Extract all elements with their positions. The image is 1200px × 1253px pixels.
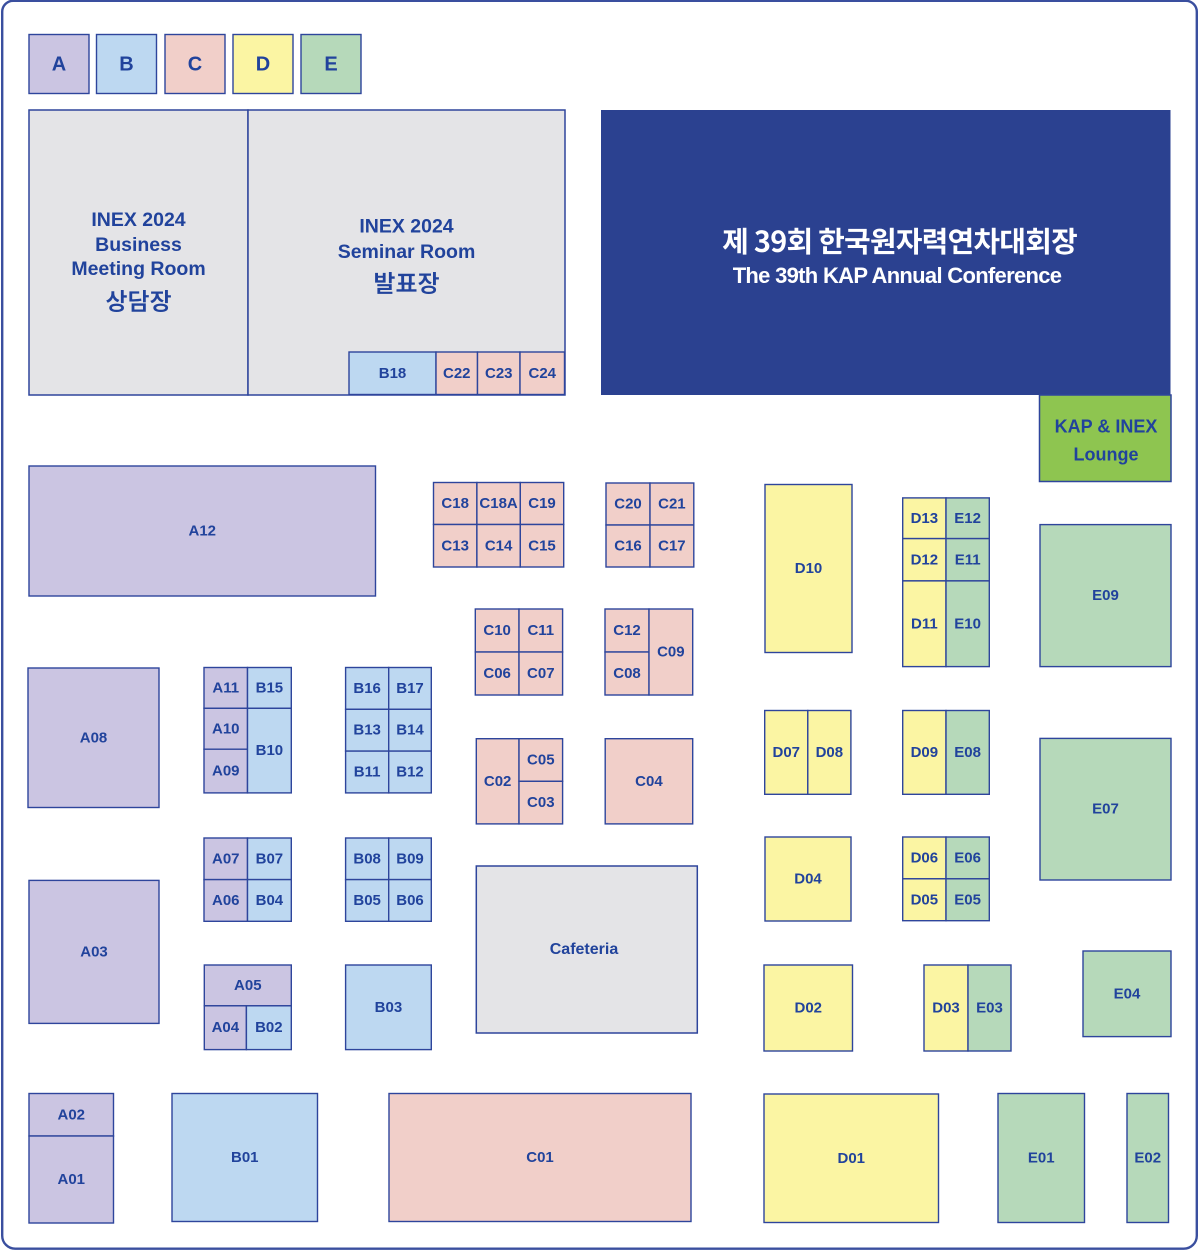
- svg-text:B01: B01: [231, 1149, 259, 1166]
- svg-text:INEX 2024: INEX 2024: [91, 209, 185, 231]
- svg-text:C03: C03: [527, 794, 555, 811]
- svg-text:C15: C15: [528, 537, 556, 554]
- svg-text:A: A: [52, 54, 66, 76]
- svg-text:C01: C01: [526, 1149, 554, 1166]
- svg-text:E12: E12: [954, 510, 981, 527]
- svg-text:E10: E10: [954, 615, 981, 632]
- svg-text:C08: C08: [613, 665, 641, 682]
- svg-text:E08: E08: [954, 744, 981, 761]
- svg-text:C14: C14: [485, 537, 513, 554]
- svg-text:Meeting Room: Meeting Room: [71, 258, 205, 280]
- svg-text:B02: B02: [255, 1019, 283, 1036]
- svg-text:A05: A05: [234, 977, 262, 994]
- svg-text:B09: B09: [396, 850, 424, 867]
- svg-text:C16: C16: [614, 538, 642, 555]
- svg-text:E09: E09: [1092, 587, 1119, 604]
- svg-text:C18A: C18A: [479, 495, 518, 512]
- svg-text:D02: D02: [794, 1000, 822, 1017]
- svg-text:C10: C10: [483, 622, 511, 639]
- svg-text:C07: C07: [527, 665, 555, 682]
- svg-text:E02: E02: [1134, 1150, 1161, 1167]
- svg-text:C22: C22: [443, 365, 471, 382]
- svg-text:E04: E04: [1114, 985, 1141, 1002]
- svg-text:E: E: [324, 54, 337, 76]
- svg-text:Lounge: Lounge: [1074, 445, 1139, 465]
- svg-text:D: D: [256, 54, 270, 76]
- svg-text:D03: D03: [932, 1000, 960, 1017]
- svg-text:D13: D13: [911, 510, 939, 527]
- svg-text:A07: A07: [212, 850, 240, 867]
- svg-text:D07: D07: [772, 744, 800, 761]
- svg-text:A11: A11: [212, 679, 239, 696]
- svg-text:C19: C19: [528, 495, 556, 512]
- svg-text:B03: B03: [375, 999, 403, 1016]
- svg-text:D01: D01: [837, 1150, 865, 1167]
- svg-text:C17: C17: [658, 538, 686, 555]
- svg-text:D04: D04: [794, 871, 822, 888]
- svg-text:B05: B05: [353, 892, 381, 909]
- svg-text:C06: C06: [483, 665, 511, 682]
- svg-text:E01: E01: [1028, 1150, 1055, 1167]
- svg-text:A01: A01: [57, 1171, 85, 1188]
- svg-text:B11: B11: [354, 764, 381, 781]
- svg-text:C21: C21: [658, 496, 686, 513]
- svg-text:B08: B08: [353, 850, 381, 867]
- svg-text:INEX 2024: INEX 2024: [359, 216, 453, 238]
- svg-text:D12: D12: [911, 551, 939, 568]
- svg-text:A03: A03: [80, 943, 108, 960]
- svg-text:B18: B18: [379, 365, 407, 382]
- svg-text:B14: B14: [396, 722, 424, 739]
- svg-text:E11: E11: [955, 551, 981, 568]
- svg-text:B10: B10: [256, 742, 284, 759]
- svg-text:C: C: [188, 54, 202, 76]
- svg-text:D08: D08: [816, 744, 844, 761]
- svg-text:B06: B06: [396, 892, 424, 909]
- svg-text:D09: D09: [911, 744, 939, 761]
- svg-text:A02: A02: [57, 1106, 85, 1123]
- svg-text:C13: C13: [441, 537, 469, 554]
- svg-text:D10: D10: [795, 560, 823, 577]
- svg-text:A04: A04: [212, 1019, 240, 1036]
- svg-text:C18: C18: [441, 495, 469, 512]
- svg-text:C24: C24: [528, 365, 556, 382]
- svg-text:A12: A12: [188, 523, 216, 540]
- svg-text:A10: A10: [212, 720, 240, 737]
- svg-text:Cafeteria: Cafeteria: [550, 941, 619, 958]
- svg-text:B12: B12: [396, 764, 424, 781]
- svg-text:B07: B07: [256, 850, 284, 867]
- svg-text:D06: D06: [911, 849, 939, 866]
- svg-text:C09: C09: [657, 644, 685, 661]
- svg-text:Business: Business: [95, 234, 182, 256]
- svg-text:B16: B16: [353, 680, 381, 697]
- svg-text:E03: E03: [976, 1000, 1003, 1017]
- svg-text:C12: C12: [613, 622, 641, 639]
- svg-text:A06: A06: [212, 892, 240, 909]
- svg-text:E06: E06: [954, 849, 981, 866]
- svg-text:B13: B13: [353, 722, 381, 739]
- svg-text:C05: C05: [527, 752, 555, 769]
- svg-text:Seminar Room: Seminar Room: [338, 241, 476, 263]
- svg-text:KAP & INEX: KAP & INEX: [1055, 417, 1158, 437]
- svg-text:C11: C11: [527, 622, 554, 639]
- svg-text:B04: B04: [256, 892, 284, 909]
- svg-text:B: B: [119, 54, 133, 76]
- svg-text:D05: D05: [911, 891, 939, 908]
- svg-text:B15: B15: [256, 679, 284, 696]
- svg-text:C04: C04: [635, 773, 663, 790]
- svg-text:C20: C20: [614, 496, 642, 513]
- svg-text:C02: C02: [484, 773, 512, 790]
- svg-text:E05: E05: [954, 891, 981, 908]
- svg-text:D11: D11: [911, 615, 938, 632]
- svg-text:E07: E07: [1092, 801, 1119, 818]
- svg-text:A09: A09: [212, 763, 240, 780]
- svg-text:B17: B17: [396, 680, 424, 697]
- svg-text:A08: A08: [80, 729, 108, 746]
- svg-text:C23: C23: [485, 365, 513, 382]
- svg-text:The 39th KAP Annual Conference: The 39th KAP Annual Conference: [733, 263, 1062, 288]
